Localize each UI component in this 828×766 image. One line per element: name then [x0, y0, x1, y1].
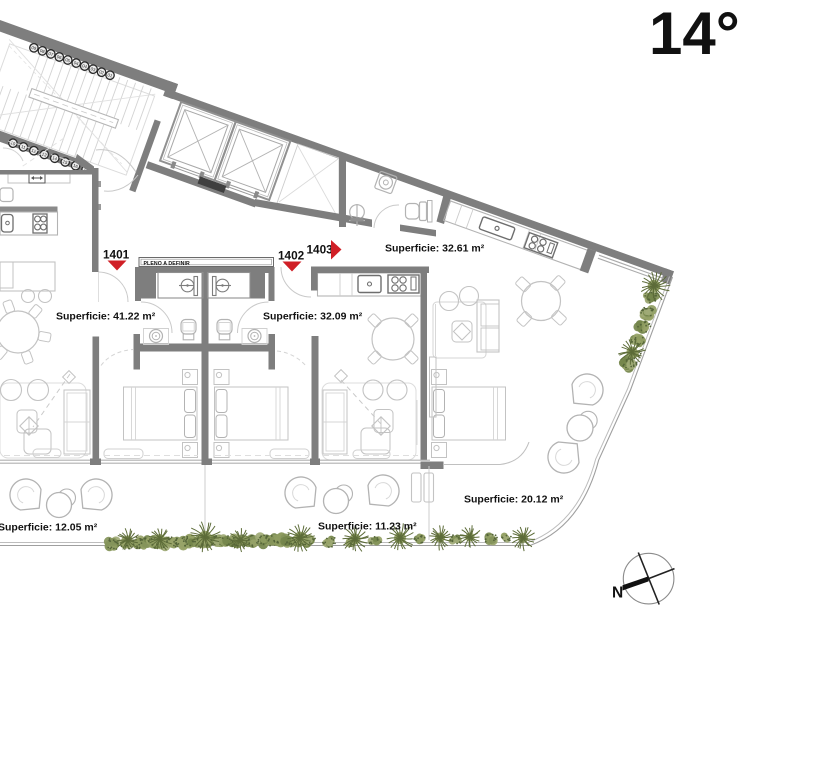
svg-text:Superficie: 11.23 m²: Superficie: 11.23 m² [318, 521, 417, 533]
svg-text:Superficie: 12.05 m²: Superficie: 12.05 m² [0, 522, 98, 534]
svg-text:Superficie: 32.61 m²: Superficie: 32.61 m² [385, 243, 485, 255]
svg-text:1402: 1402 [278, 249, 305, 263]
svg-text:N: N [612, 585, 623, 602]
svg-text:14°: 14° [649, 0, 740, 67]
svg-text:Superficie: 32.09 m²: Superficie: 32.09 m² [263, 311, 363, 323]
svg-text:1403: 1403 [307, 243, 334, 257]
svg-text:Superficie: 41.22 m²: Superficie: 41.22 m² [56, 311, 156, 323]
svg-text:1401: 1401 [103, 248, 130, 262]
svg-text:PLENO A DEFINIR: PLENO A DEFINIR [144, 261, 191, 267]
svg-text:Superficie: 20.12 m²: Superficie: 20.12 m² [464, 494, 564, 506]
